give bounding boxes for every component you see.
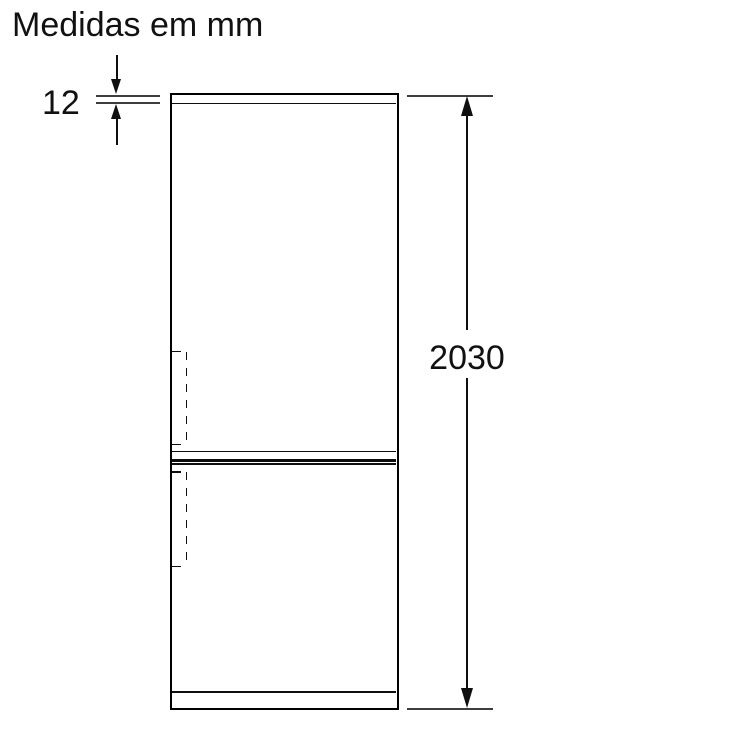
top-panel-lower-extension-line <box>96 102 160 104</box>
lower-door-top-line <box>172 459 396 462</box>
fridge-outline <box>170 93 399 710</box>
units-title: Medidas em mm <box>12 6 263 45</box>
top-panel-inner-line <box>172 103 396 105</box>
plinth-line <box>172 691 396 693</box>
height-dimension-line-upper <box>466 113 468 330</box>
dimension-diagram: Medidas em mm 12 2030 <box>0 0 750 750</box>
upper-hinge-bottom-tick <box>172 444 181 446</box>
lower-hinge-bottom-tick <box>172 566 181 568</box>
upper-door-bottom-line <box>172 451 396 453</box>
lower-door-hinge-dashed-line <box>186 472 188 567</box>
top-panel-upper-extension-line <box>96 95 160 97</box>
overall-height-dimension-value: 2030 <box>427 339 507 378</box>
height-bottom-extension-line <box>407 708 493 710</box>
top-panel-dimension-value: 12 <box>42 84 80 123</box>
top-panel-dimension-line-upper <box>116 55 118 79</box>
height-dimension-line-lower <box>466 378 468 690</box>
arrow-down-icon <box>461 688 473 708</box>
top-panel-dimension-line-lower <box>116 119 118 145</box>
upper-door-hinge-dashed-line <box>186 352 188 444</box>
height-top-extension-line <box>407 95 493 97</box>
upper-hinge-top-tick <box>172 351 181 353</box>
lower-door-top-inner-line <box>172 463 396 465</box>
lower-hinge-top-tick <box>172 471 181 473</box>
arrow-down-icon <box>111 79 121 94</box>
arrow-up-icon <box>111 104 121 119</box>
